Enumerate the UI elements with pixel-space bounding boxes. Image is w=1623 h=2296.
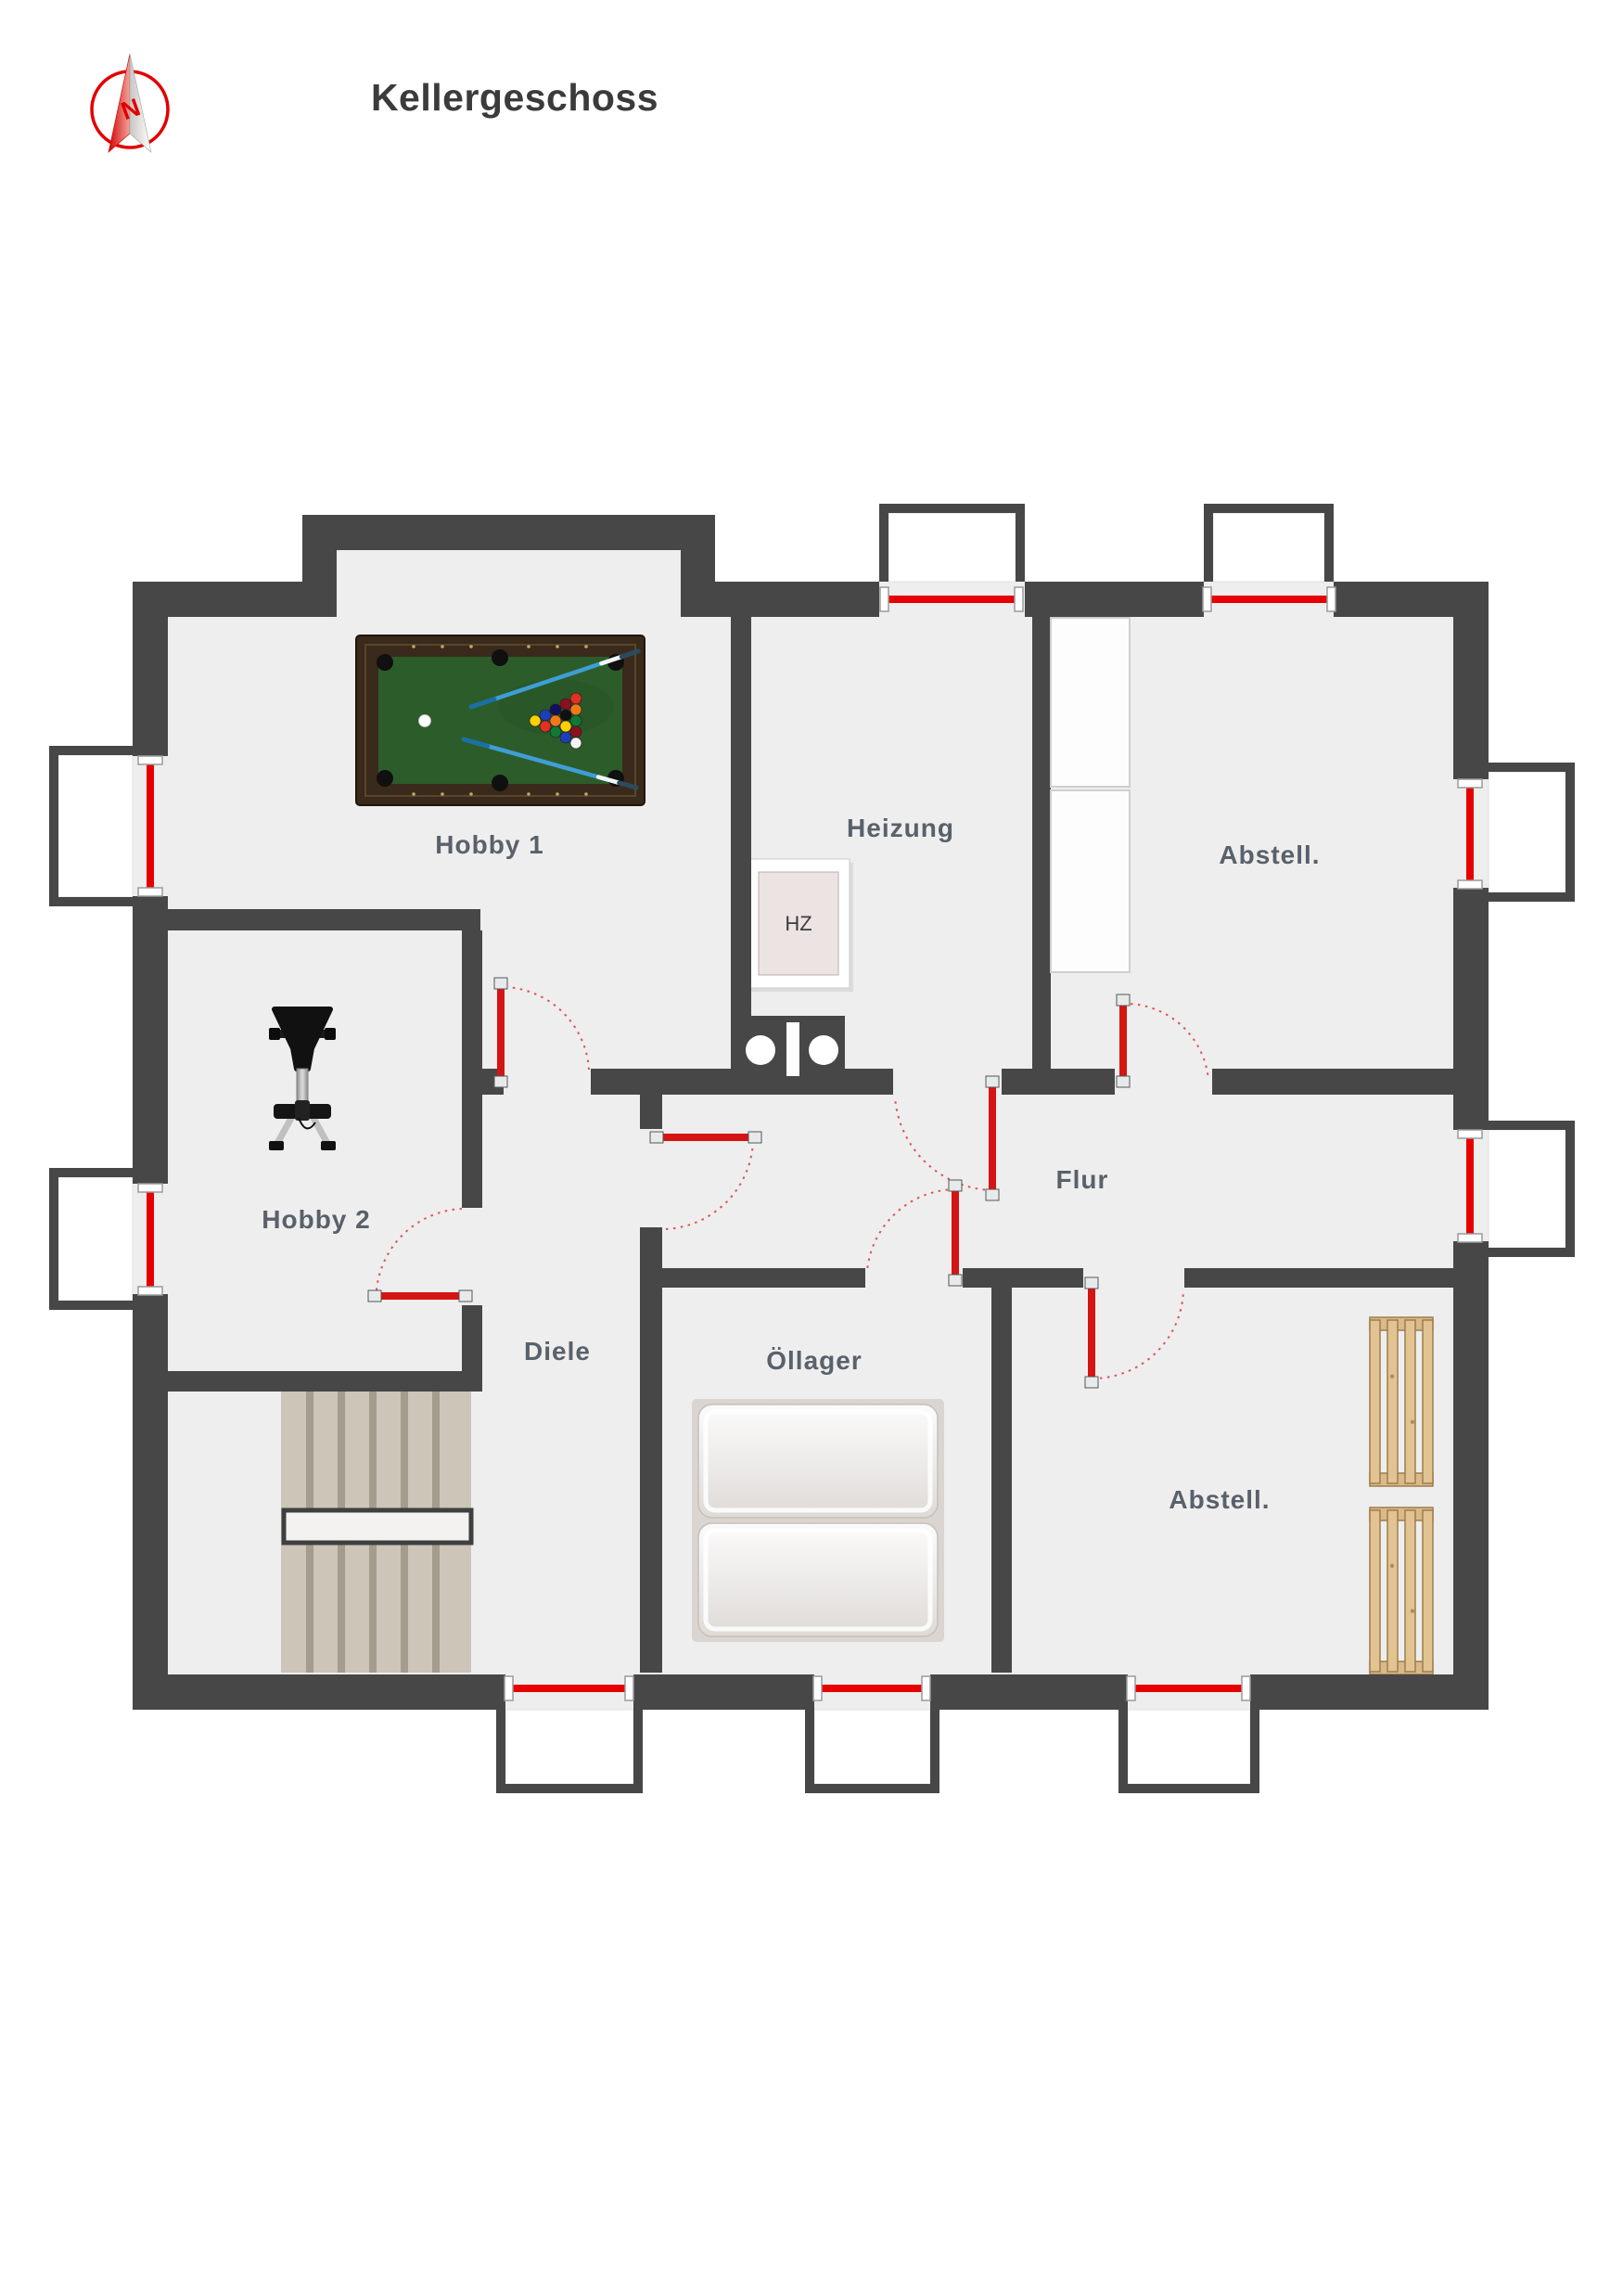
wall (1453, 888, 1489, 1130)
window-jamb (1458, 779, 1482, 788)
room-label-abstell-bottom: Abstell. (1169, 1485, 1270, 1514)
wall (302, 515, 337, 617)
window-glass-line (147, 763, 154, 889)
wall-thin (1489, 892, 1575, 902)
door-hinge-cap (650, 1132, 663, 1143)
window-glass-line (1135, 1685, 1243, 1692)
wall (133, 896, 168, 1184)
wall (633, 1674, 814, 1710)
wall (640, 1227, 662, 1673)
door-hinge-cap (1117, 994, 1130, 1006)
door-hinge-cap (1085, 1277, 1098, 1289)
wall-thin (49, 897, 133, 906)
door-leaf (497, 986, 505, 1078)
wall (1212, 1069, 1453, 1095)
door-hinge-cap (986, 1076, 999, 1087)
door-hinge-cap (1085, 1377, 1098, 1388)
room-label-flur: Flur (1056, 1165, 1109, 1194)
door-hinge-cap (986, 1189, 999, 1200)
floor-plan: HZHobby 1HeizungAbstell.Hobby 2DieleÖlla… (0, 0, 1623, 2296)
wall (640, 1095, 662, 1129)
wall (963, 1268, 1083, 1288)
oil-tanks (692, 1399, 944, 1642)
wall (930, 1674, 1128, 1710)
wall-thin (1324, 504, 1334, 582)
window-jamb (1327, 587, 1335, 611)
wall (1025, 582, 1204, 617)
wall-thin (1565, 1121, 1575, 1257)
wall-thin (805, 1784, 939, 1793)
room-label-hobby1: Hobby 1 (435, 830, 543, 859)
wall-thin (1118, 1784, 1259, 1793)
door-hinge-cap (1117, 1076, 1130, 1087)
wall (715, 582, 879, 617)
wall-thin (1118, 1710, 1128, 1793)
window-jamb (1015, 587, 1023, 611)
wall-thin (496, 1784, 643, 1793)
room-label-oellager: Öllager (766, 1346, 862, 1375)
cue-ball (419, 715, 431, 727)
wall-thin (1489, 1121, 1575, 1130)
window-jamb (138, 1287, 162, 1295)
window-glass-line (1211, 596, 1328, 603)
door-hinge-cap (949, 1275, 962, 1286)
wall-thin (879, 504, 1025, 513)
window-jamb (1242, 1676, 1250, 1700)
door-hinge-cap (494, 978, 507, 989)
wall-thin (1204, 504, 1213, 582)
wall (662, 1268, 865, 1288)
window-jamb (138, 888, 162, 896)
window-jamb (138, 1184, 162, 1192)
wall-thin (879, 504, 888, 582)
wall-thin (49, 1301, 133, 1310)
wall-thin (633, 1710, 643, 1793)
window-jamb (1458, 1130, 1482, 1138)
window-glass-line (1466, 1137, 1474, 1235)
door-leaf (989, 1085, 996, 1191)
wall (133, 1674, 505, 1710)
door-hinge-cap (494, 1076, 507, 1087)
door-hinge-cap (949, 1180, 962, 1191)
wall (168, 1371, 482, 1392)
door-hinge-cap (459, 1290, 472, 1302)
window-glass-line (1466, 787, 1474, 881)
window-jamb (880, 587, 888, 611)
window-jamb (922, 1676, 930, 1700)
room-label-heizung: Heizung (847, 814, 954, 842)
wall (168, 909, 480, 930)
page: N Kellergeschoss HZHobby 1HeizungAbstell… (0, 0, 1623, 2296)
window-jamb (1127, 1676, 1135, 1700)
window-jamb (625, 1676, 633, 1700)
wall (1184, 1268, 1453, 1288)
wall-thin (1016, 504, 1025, 582)
window-jamb (138, 756, 162, 764)
wall (1453, 1241, 1489, 1710)
wall-thin (1204, 504, 1334, 513)
door-leaf (1119, 1004, 1127, 1080)
wall (1453, 582, 1489, 779)
pool-table (356, 635, 645, 805)
wall (1002, 1069, 1115, 1095)
wall-thin (49, 1168, 58, 1310)
wall (133, 1294, 168, 1710)
room-label-hobby2: Hobby 2 (262, 1205, 370, 1234)
door-leaf (375, 1292, 466, 1300)
door-hinge-cap (368, 1290, 381, 1302)
wall (681, 515, 715, 617)
wall-thin (1489, 763, 1575, 772)
hz-label: HZ (785, 912, 811, 935)
door-leaf (657, 1134, 755, 1141)
wall (591, 1069, 893, 1095)
heating-unit: HZ (748, 859, 853, 992)
wall-thin (49, 1168, 133, 1177)
window-jamb (1203, 587, 1211, 611)
wall (1250, 1674, 1489, 1710)
wall-thin (930, 1710, 939, 1793)
wall (991, 1288, 1012, 1673)
window-glass-line (147, 1191, 154, 1288)
door-leaf (952, 1188, 959, 1277)
wall-thin (1489, 1248, 1575, 1257)
wall-thin (805, 1710, 814, 1793)
wall-thin (49, 746, 58, 906)
stairs-landing (284, 1510, 471, 1543)
wall (302, 515, 715, 550)
door-hinge-cap (748, 1132, 761, 1143)
wall (133, 582, 168, 756)
window-jamb (505, 1676, 513, 1700)
wall (1032, 617, 1051, 1069)
staircase (281, 1392, 471, 1673)
window-jamb (1458, 1234, 1482, 1242)
wall-thin (1565, 763, 1575, 902)
duct-shaft (1051, 618, 1130, 972)
wall (731, 617, 751, 1016)
room-label-abstell-top: Abstell. (1219, 840, 1320, 869)
room-label-diele: Diele (524, 1337, 591, 1366)
window-jamb (813, 1676, 822, 1700)
window-glass-line (513, 1685, 626, 1692)
window-jamb (1458, 880, 1482, 889)
wall-thin (496, 1710, 505, 1793)
wall-thin (1250, 1710, 1259, 1793)
window-glass-line (822, 1685, 923, 1692)
door-leaf (1088, 1287, 1095, 1379)
wall-thin (49, 746, 133, 755)
window-glass-line (888, 596, 1016, 603)
